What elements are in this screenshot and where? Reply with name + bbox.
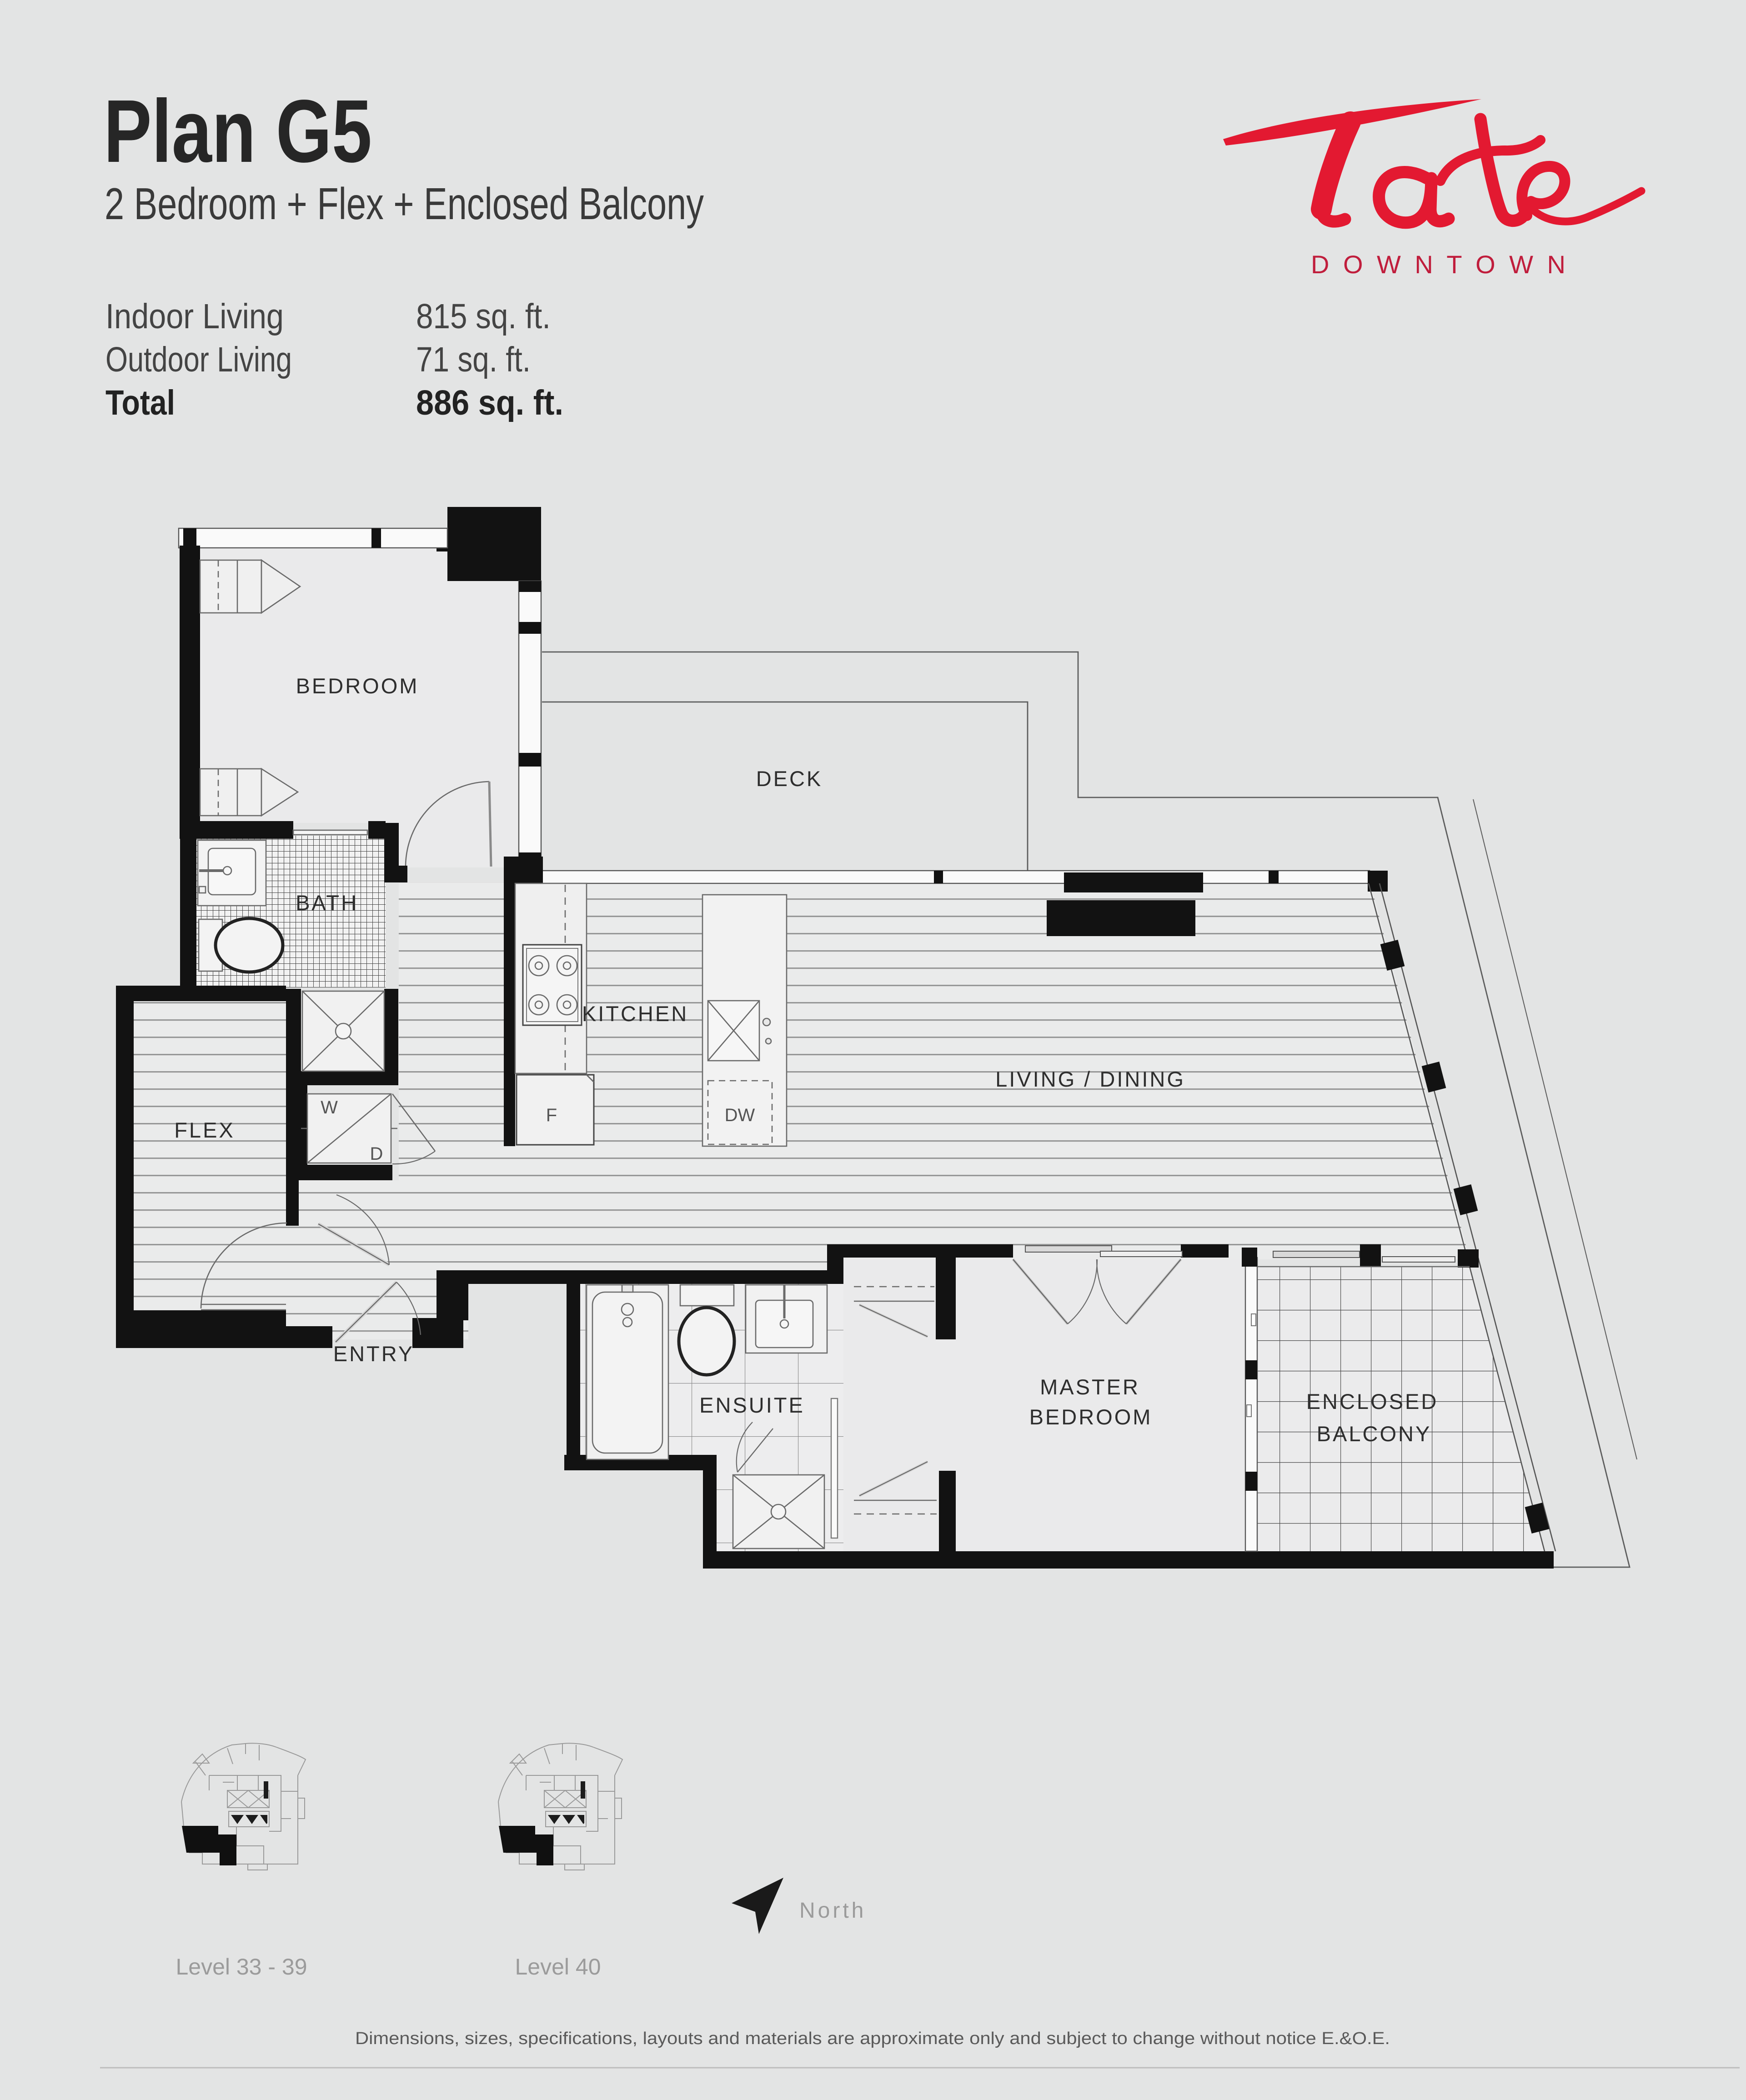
svg-text:D O W N T O W N: D O W N T O W N	[1311, 250, 1570, 279]
svg-text:DW: DW	[725, 1105, 755, 1125]
svg-text:BEDROOM: BEDROOM	[296, 674, 419, 698]
svg-text:815 sq. ft.: 815 sq. ft.	[416, 297, 551, 336]
svg-text:Level 33 - 39: Level 33 - 39	[176, 1954, 307, 1980]
svg-text:KITCHEN: KITCHEN	[582, 1002, 688, 1026]
svg-text:71 sq. ft.: 71 sq. ft.	[416, 340, 531, 379]
svg-text:2 Bedroom + Flex + Enclosed Ba: 2 Bedroom + Flex + Enclosed Balcony	[105, 179, 704, 229]
svg-text:BATH: BATH	[296, 891, 358, 915]
svg-text:Total: Total	[105, 383, 175, 422]
svg-text:Dimensions, sizes, specificati: Dimensions, sizes, specifications, layou…	[355, 2029, 1390, 2048]
svg-text:FLEX: FLEX	[174, 1118, 235, 1142]
svg-text:W: W	[321, 1098, 338, 1118]
svg-text:F: F	[546, 1105, 557, 1125]
svg-text:Indoor Living: Indoor Living	[105, 297, 284, 336]
svg-text:ENTRY: ENTRY	[333, 1342, 414, 1366]
svg-text:North: North	[799, 1899, 866, 1923]
svg-text:Outdoor Living: Outdoor Living	[105, 340, 292, 379]
svg-text:LIVING / DINING: LIVING / DINING	[995, 1067, 1185, 1091]
svg-text:886 sq. ft.: 886 sq. ft.	[416, 383, 563, 422]
svg-text:DECK: DECK	[756, 767, 823, 791]
svg-text:ENCLOSED: ENCLOSED	[1306, 1389, 1439, 1413]
svg-text:BALCONY: BALCONY	[1317, 1422, 1432, 1446]
svg-text:Plan G5: Plan G5	[104, 81, 372, 181]
svg-text:D: D	[370, 1144, 383, 1164]
svg-text:Level 40: Level 40	[515, 1954, 601, 1980]
svg-text:BEDROOM: BEDROOM	[1029, 1405, 1153, 1429]
svg-text:ENSUITE: ENSUITE	[699, 1393, 805, 1417]
svg-text:MASTER: MASTER	[1040, 1375, 1140, 1399]
